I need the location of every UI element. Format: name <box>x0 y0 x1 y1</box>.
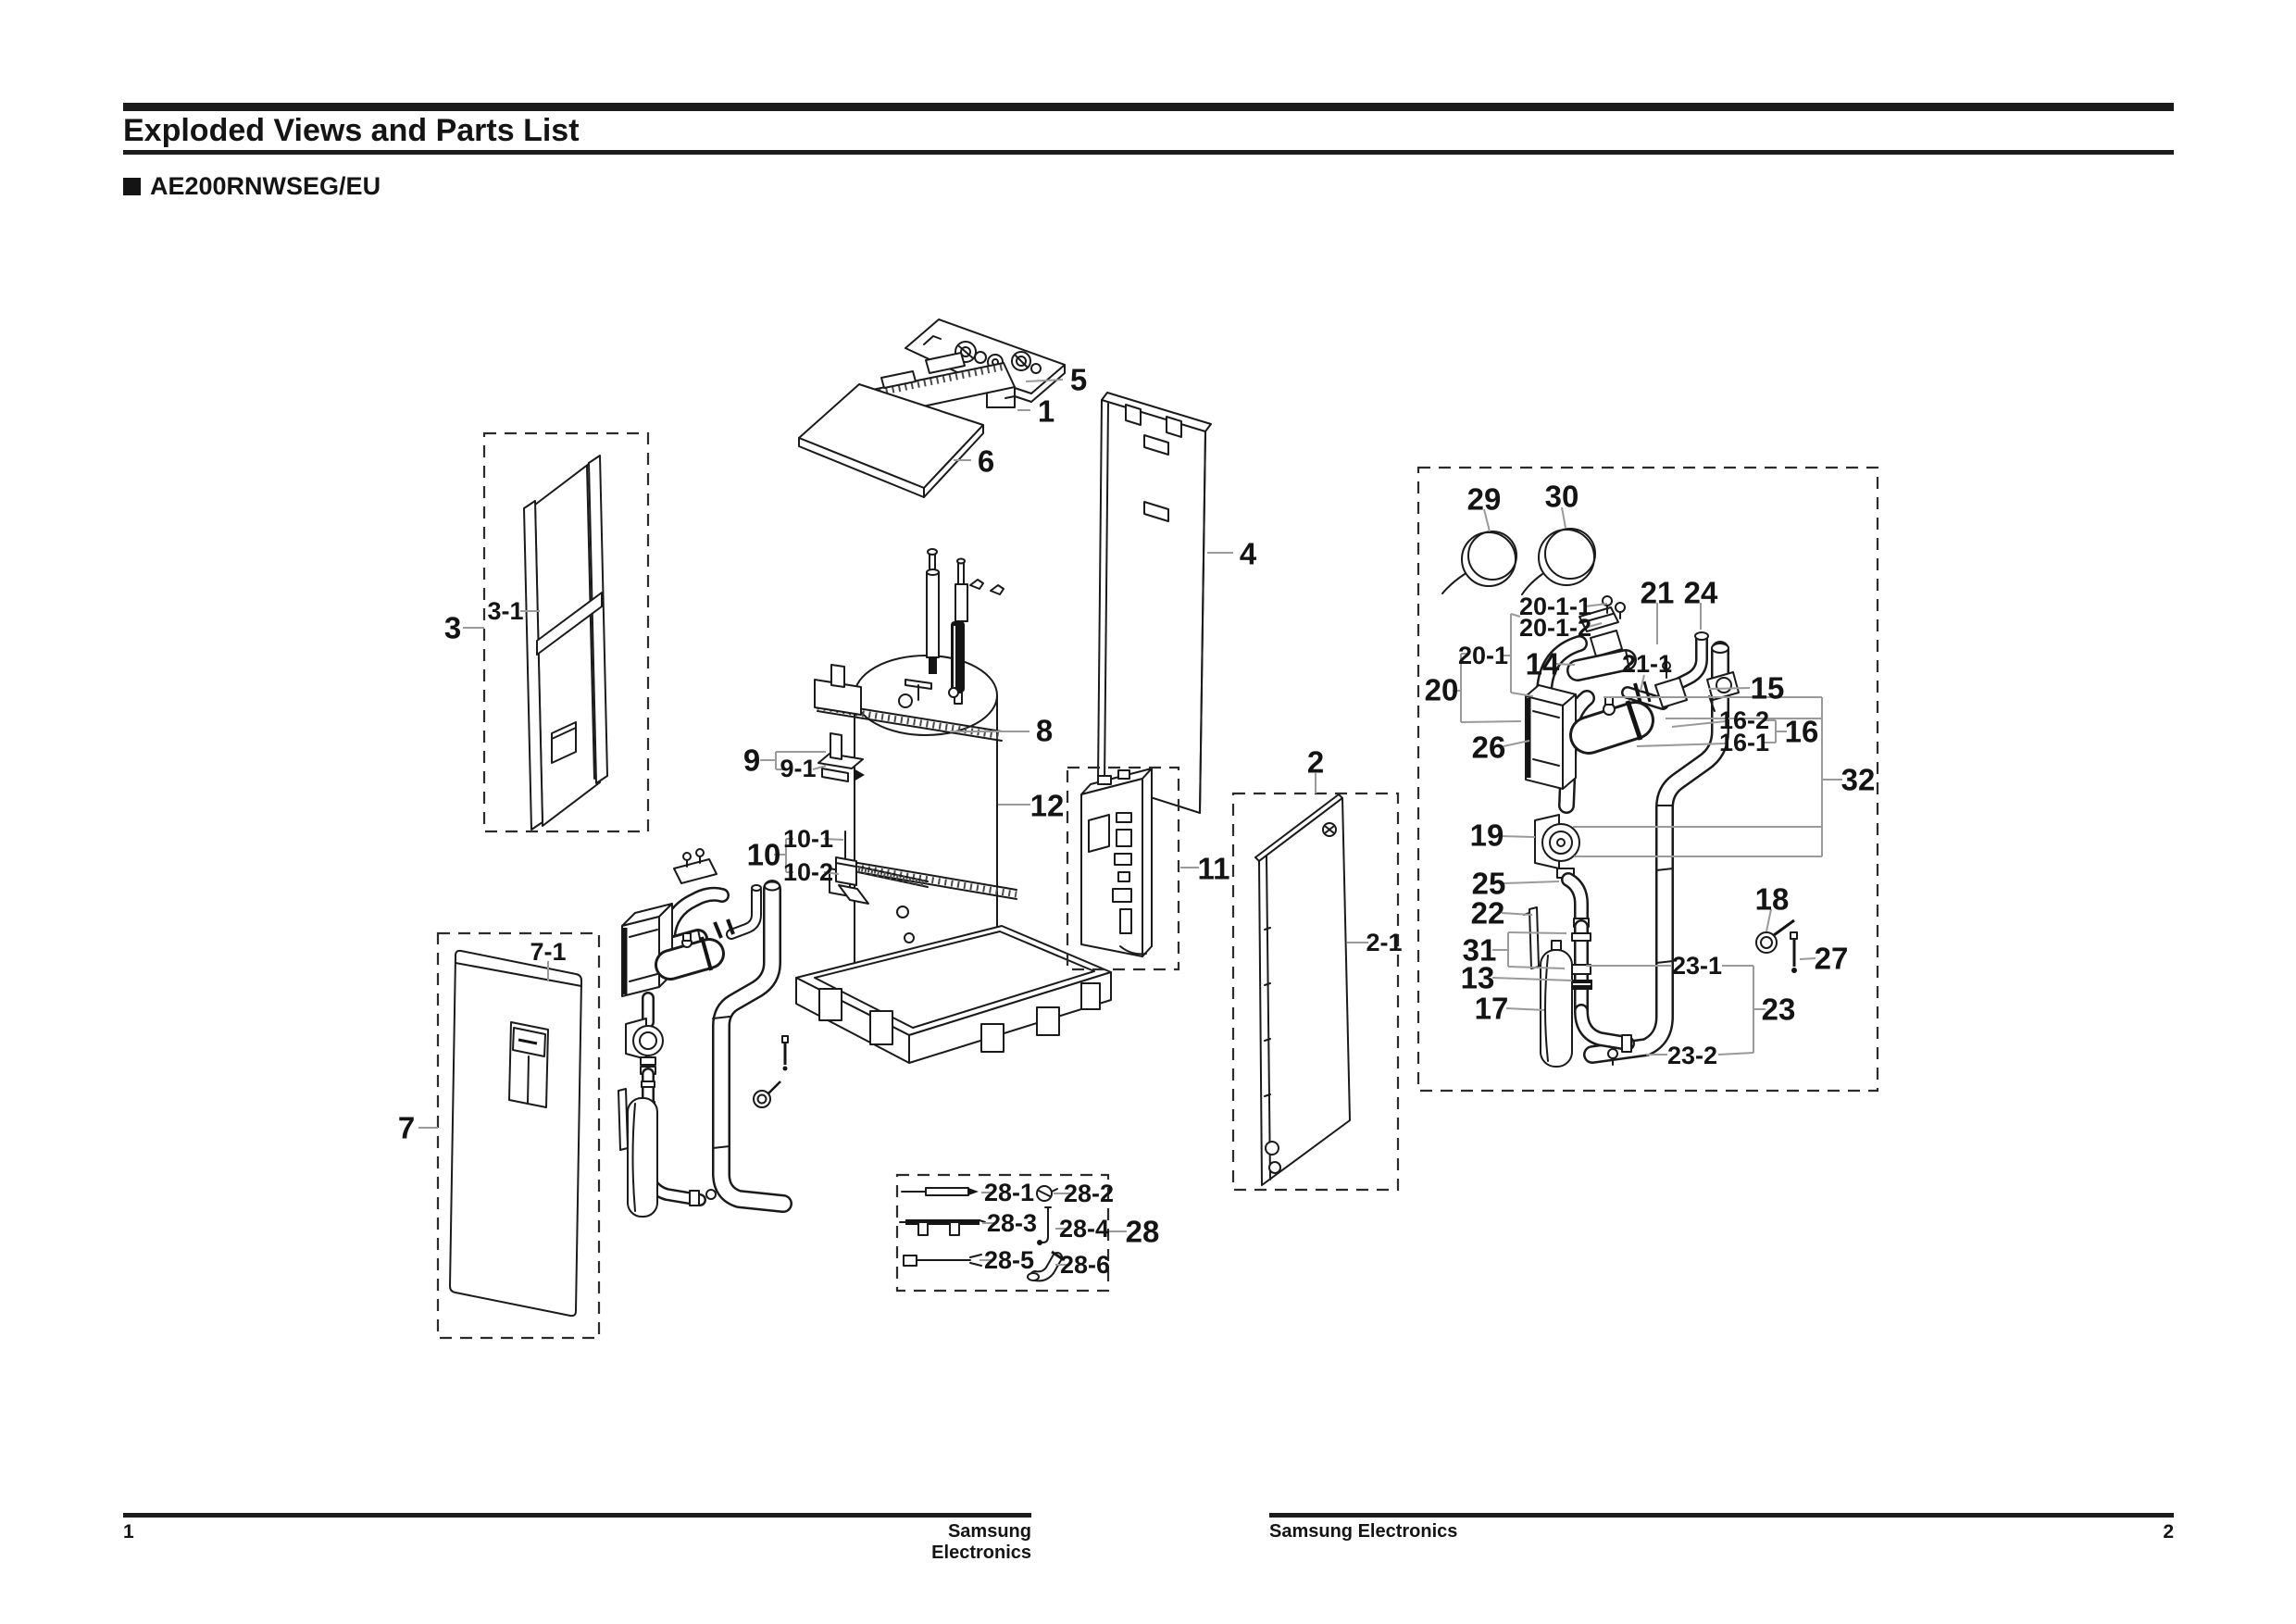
part-2-side-panel <box>1255 794 1350 1185</box>
part-label-32: 32 <box>1841 763 1876 797</box>
part-label-10: 10 <box>747 838 781 872</box>
part-11-control-box <box>1081 768 1152 956</box>
part-label-7: 7 <box>398 1111 415 1145</box>
part-label-26: 26 <box>1472 731 1506 765</box>
part-label-30: 30 <box>1545 480 1579 514</box>
part-28-sensor-kit <box>900 1186 1063 1280</box>
part-label-20-1: 20-1 <box>1458 642 1508 669</box>
part-30-tube-coil <box>1522 529 1595 594</box>
footer-rule-right <box>1269 1513 2174 1518</box>
part-label-11: 11 <box>1198 852 1230 886</box>
part-label-14: 14 <box>1526 647 1560 681</box>
part-label-29: 29 <box>1467 482 1502 517</box>
part-3-frame-panel <box>524 456 607 830</box>
leader-line <box>1718 1053 1753 1055</box>
right-hydraulic-assembly <box>1442 529 1797 1067</box>
part-label-10-1: 10-1 <box>783 825 833 853</box>
leader-line <box>1800 958 1816 959</box>
leader-line <box>1500 836 1535 837</box>
part-label-23-1: 23-1 <box>1672 952 1722 980</box>
page-number-left: 1 <box>123 1521 134 1543</box>
part-7-front-panel <box>450 951 581 1316</box>
service-manual-page: Exploded Views and Parts List AE200RNWSE… <box>0 0 2296 1624</box>
part-label-28-4: 28-4 <box>1059 1215 1109 1243</box>
part-label-28: 28 <box>1126 1215 1160 1249</box>
part-label-6: 6 <box>978 444 994 479</box>
footer-rule-left <box>123 1513 1031 1518</box>
leader-line <box>1461 721 1521 722</box>
part-label-10-2: 10-2 <box>783 858 833 886</box>
part-label-3-1: 3-1 <box>487 597 523 625</box>
part-label-17: 17 <box>1475 992 1509 1026</box>
part-label-2: 2 <box>1307 745 1324 780</box>
part-label-4: 4 <box>1240 537 1257 571</box>
center-hydraulic-assembly <box>618 849 788 1217</box>
exploded-view-art: 516433-177-181299-11010-110-21122-128-12… <box>0 0 2296 1624</box>
part-label-23-2: 23-2 <box>1667 1042 1717 1069</box>
leader-line <box>1508 932 1566 933</box>
leader-line <box>1504 881 1559 883</box>
part-label-3: 3 <box>444 611 461 645</box>
part-label-28-6: 28-6 <box>1060 1251 1110 1279</box>
part-label-24: 24 <box>1684 576 1718 610</box>
part-label-28-1: 28-1 <box>984 1179 1034 1206</box>
publisher-right: Samsung Electronics <box>1269 1521 1457 1543</box>
publisher-left: Samsung Electronics <box>870 1521 1031 1564</box>
part-label-2-1: 2-1 <box>1366 929 1402 956</box>
pallet-base <box>796 926 1111 1063</box>
part-label-28-2: 28-2 <box>1064 1180 1114 1207</box>
exploded-view-diagram: 516433-177-181299-11010-110-21122-128-12… <box>0 0 2296 1624</box>
part-label-22: 22 <box>1471 896 1505 931</box>
part-label-16-1: 16-1 <box>1719 729 1769 756</box>
part-label-20-1-2: 20-1-2 <box>1519 614 1591 642</box>
part-label-19: 19 <box>1470 818 1504 853</box>
part-label-21-1: 21-1 <box>1622 650 1672 678</box>
part-4-rear-panel <box>1098 393 1211 813</box>
part-label-9-1: 9-1 <box>780 755 816 782</box>
part-label-28-3: 28-3 <box>987 1209 1037 1237</box>
part-label-5: 5 <box>1070 363 1087 397</box>
part-label-20: 20 <box>1425 673 1459 707</box>
part-label-27: 27 <box>1815 942 1849 976</box>
part-label-15: 15 <box>1751 671 1785 706</box>
part-label-7-1: 7-1 <box>530 938 566 966</box>
part-6-top-cover <box>799 384 983 497</box>
part-label-16: 16 <box>1785 715 1819 749</box>
leader-line <box>1709 688 1750 689</box>
part-label-13: 13 <box>1461 961 1495 995</box>
part-label-9: 9 <box>743 743 760 778</box>
part-label-21: 21 <box>1641 576 1675 610</box>
part-29-tube-coil <box>1442 531 1516 593</box>
part-label-8: 8 <box>1036 714 1053 748</box>
part-26-heat-exchanger <box>1526 685 1576 789</box>
part-label-18: 18 <box>1755 882 1790 917</box>
page-number-right: 2 <box>2146 1521 2174 1543</box>
part-label-28-5: 28-5 <box>984 1246 1034 1274</box>
part-label-23: 23 <box>1762 993 1796 1027</box>
part-label-12: 12 <box>1030 789 1065 823</box>
part-label-1: 1 <box>1038 394 1054 429</box>
leader-line <box>1506 1008 1544 1010</box>
